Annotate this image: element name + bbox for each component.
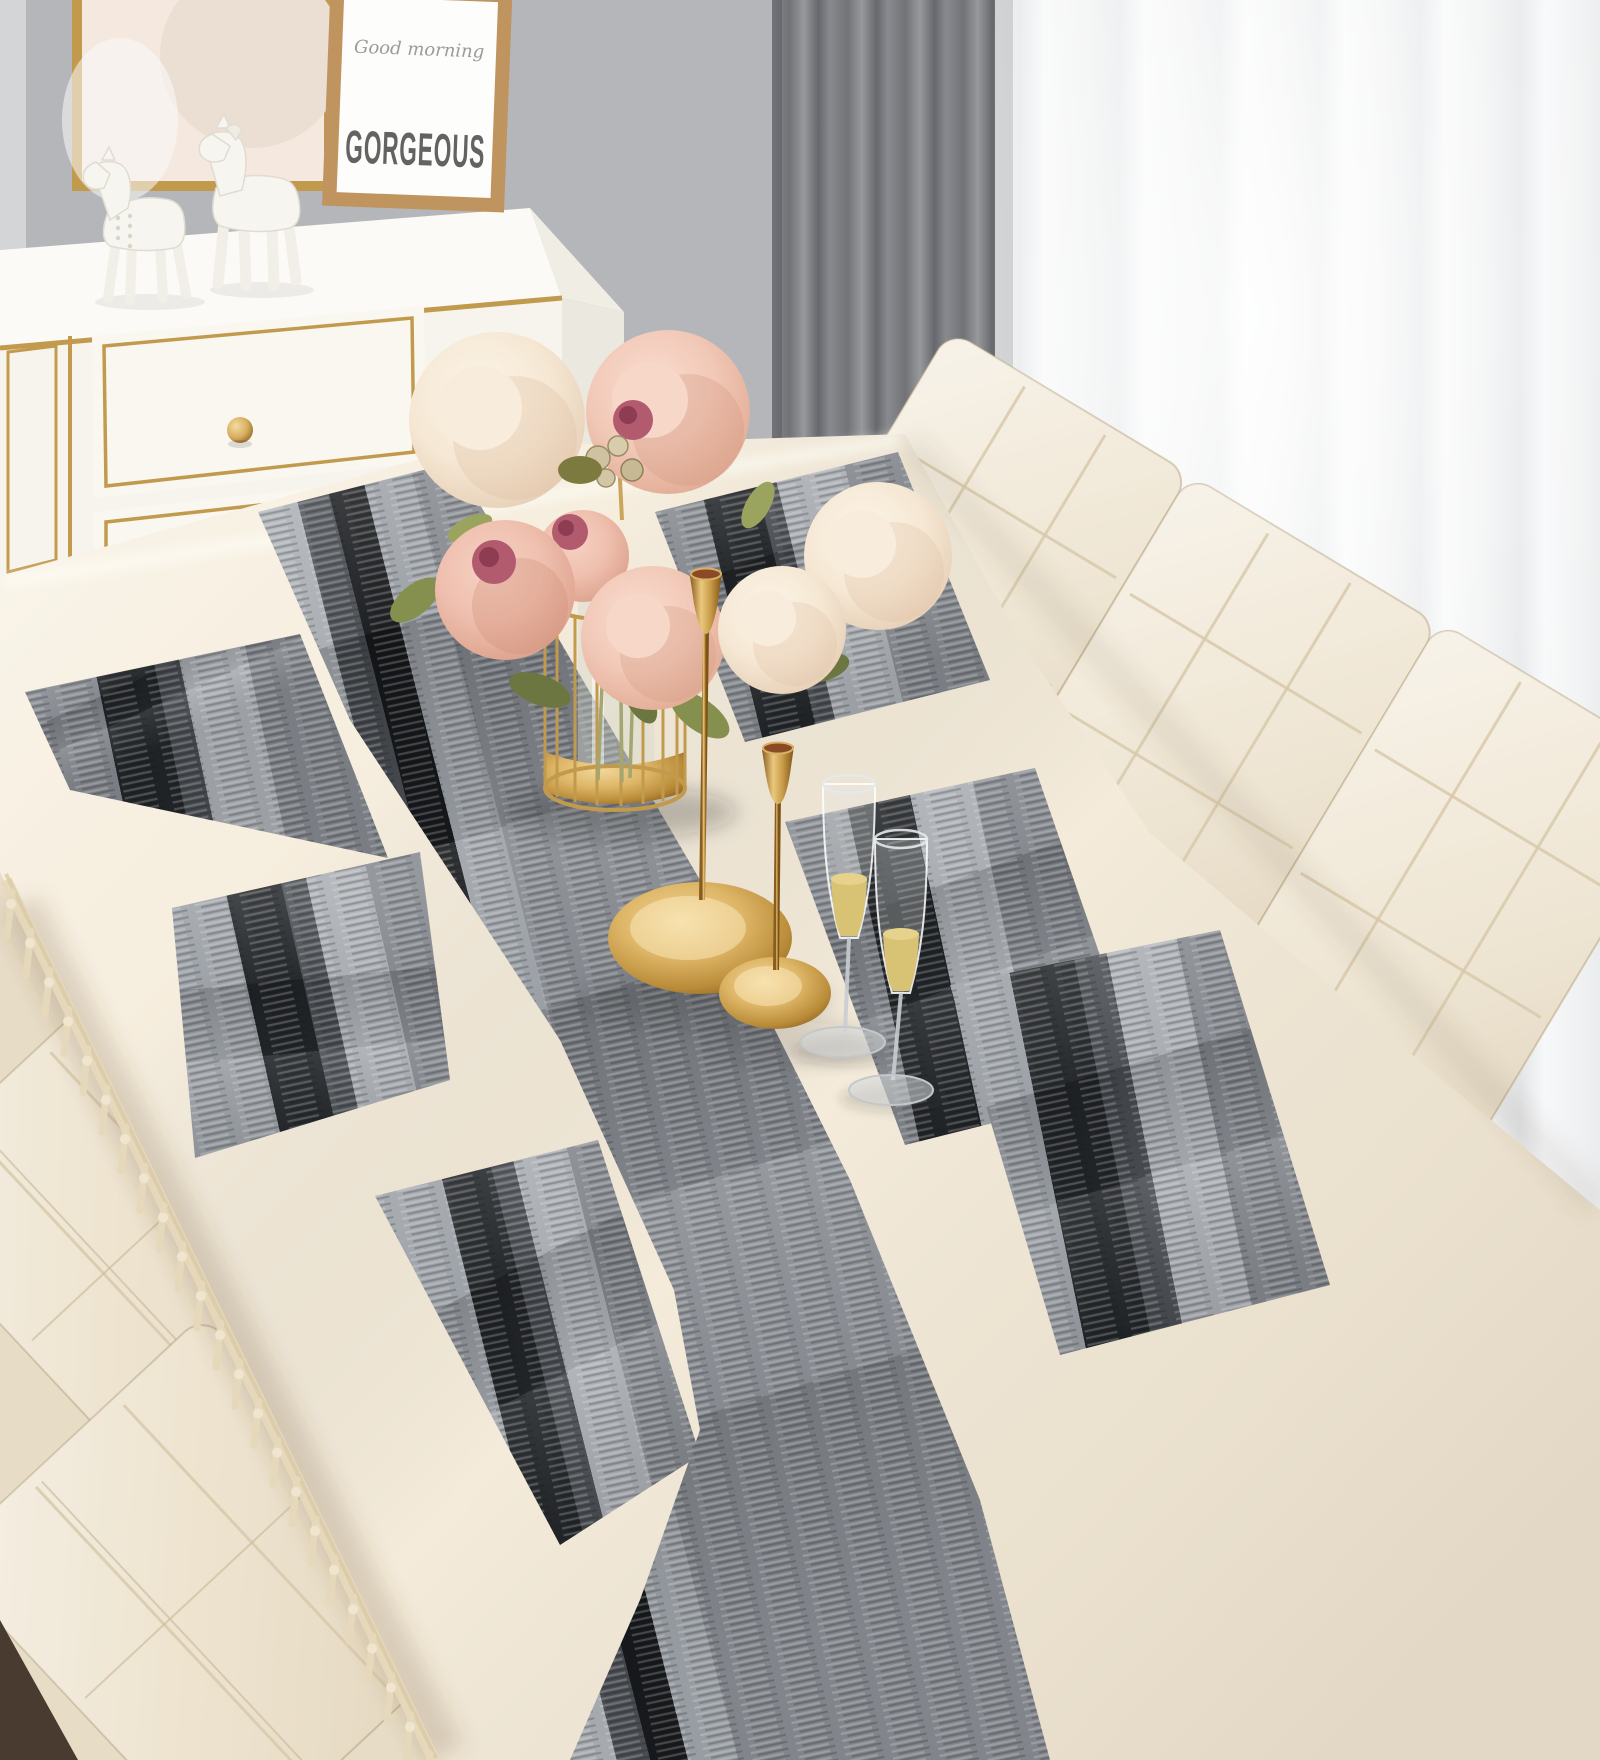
tassel xyxy=(102,1088,107,1132)
tassel xyxy=(197,1284,202,1328)
tassel xyxy=(311,1519,316,1563)
tassel-knot xyxy=(291,1487,301,1497)
rose-bloom-cream-lowright xyxy=(718,566,846,694)
tassel-knot xyxy=(158,1212,168,1222)
tassel xyxy=(83,1049,88,1093)
tassel-knot xyxy=(215,1330,225,1340)
tassel-knot xyxy=(25,938,35,948)
tassel-knot xyxy=(310,1526,320,1536)
wood-frame-sign: Good morning GORGEOUS xyxy=(322,0,512,213)
tassel xyxy=(7,892,12,936)
tassel-knot xyxy=(177,1252,187,1262)
drawer-knob-shadow xyxy=(228,440,252,448)
tassel xyxy=(140,1166,145,1210)
tassel-knot xyxy=(348,1604,358,1614)
tassel-knot xyxy=(6,899,16,909)
tassel-knot xyxy=(63,1017,73,1027)
rose-bloom-pink-left xyxy=(435,520,575,660)
tassel xyxy=(368,1636,373,1680)
tassel xyxy=(330,1558,335,1602)
tassel-knot xyxy=(44,977,54,987)
rose-bloom-cream-topleft xyxy=(409,332,585,508)
tassel xyxy=(216,1323,221,1367)
tassel xyxy=(349,1597,354,1641)
scene-canvas: Good morning GORGEOUS xyxy=(0,0,1600,1760)
tassel xyxy=(178,1245,183,1289)
wall-left-panel xyxy=(0,0,26,280)
tassel xyxy=(64,1010,69,1054)
tassel-knot xyxy=(386,1683,396,1693)
sign-main-text: GORGEOUS xyxy=(344,122,486,179)
rose-bloom-blush-top xyxy=(586,330,750,494)
tassel-knot xyxy=(234,1369,244,1379)
tassel-knot xyxy=(329,1565,339,1575)
tassel xyxy=(235,1362,240,1406)
tassel-knot xyxy=(405,1722,415,1732)
tassel-knot xyxy=(367,1643,377,1653)
tassel xyxy=(121,1127,126,1171)
tassel xyxy=(273,1441,278,1485)
tassel-knot xyxy=(253,1408,263,1418)
tassel-knot xyxy=(272,1448,282,1458)
tassel xyxy=(292,1480,297,1524)
tassel xyxy=(159,1205,164,1249)
tassel-knot xyxy=(120,1134,130,1144)
tassel xyxy=(45,970,50,1014)
dining-room-photo: Good morning GORGEOUS xyxy=(0,0,1600,1760)
tassel xyxy=(254,1401,259,1445)
tassel xyxy=(26,931,31,975)
tassel-knot xyxy=(82,1056,92,1066)
tassel xyxy=(406,1715,411,1759)
tassel-knot xyxy=(101,1095,111,1105)
tassel xyxy=(387,1676,392,1720)
tassel-knot xyxy=(196,1291,206,1301)
tassel-knot xyxy=(139,1173,149,1183)
drawer-knob xyxy=(227,417,253,443)
